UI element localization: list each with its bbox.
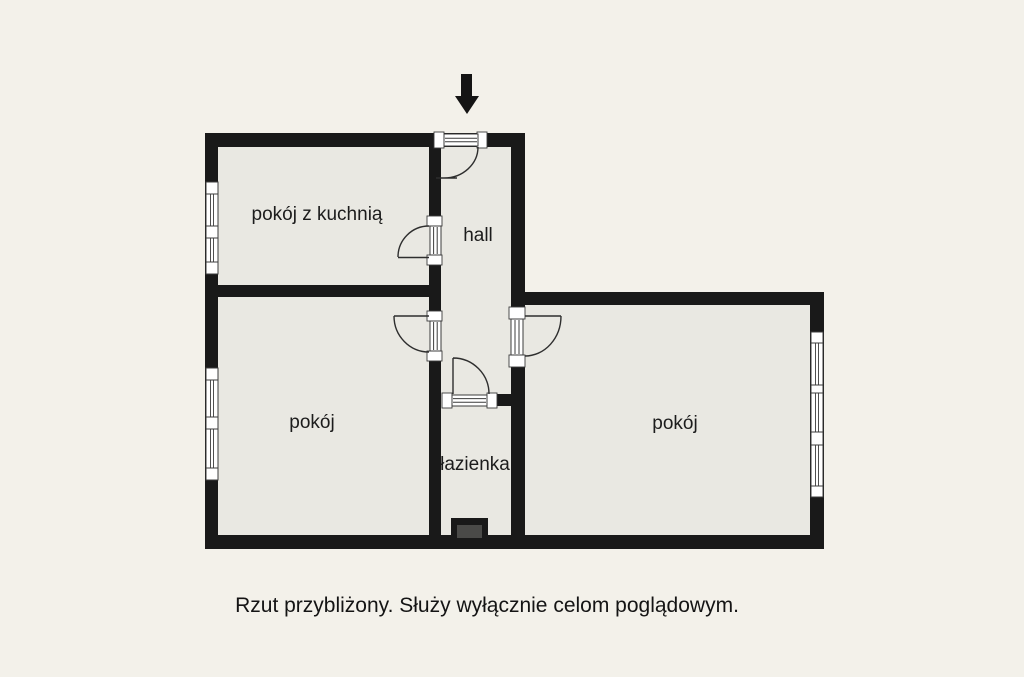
window-left-bottom (206, 368, 218, 480)
window-right (811, 332, 823, 497)
wall-interior-vertical-c (429, 361, 441, 535)
bathroom-shaft (451, 518, 488, 542)
room-label-right: pokój (652, 413, 697, 434)
window-left-top (206, 182, 218, 274)
wall-hall-right-lower (511, 367, 525, 549)
wall-leftrooms-divider (218, 285, 429, 297)
room-label-left: pokój (289, 412, 334, 433)
wall-interior-vertical-a (429, 147, 441, 216)
room-label-kitchen: pokój z kuchnią (252, 204, 383, 225)
disclaimer-caption: Rzut przybliżony. Służy wyłącznie celom … (235, 594, 739, 617)
room-label-hall: hall (463, 225, 493, 246)
shaft-fill (457, 525, 482, 538)
wall-rightblock-top (511, 292, 824, 305)
floorplan-drawing: pokój z kuchnią hall pokój pokój łazienk… (0, 0, 1024, 677)
wall-bathroom-stub (497, 394, 511, 406)
entrance-arrow-icon (455, 74, 479, 114)
wall-hall-right-upper (511, 133, 525, 307)
floorplan-canvas: pokój z kuchnią hall pokój pokój łazienk… (0, 0, 1024, 677)
wall-interior-vertical-b (429, 265, 441, 311)
room-label-bathroom: łazienka (440, 454, 510, 475)
